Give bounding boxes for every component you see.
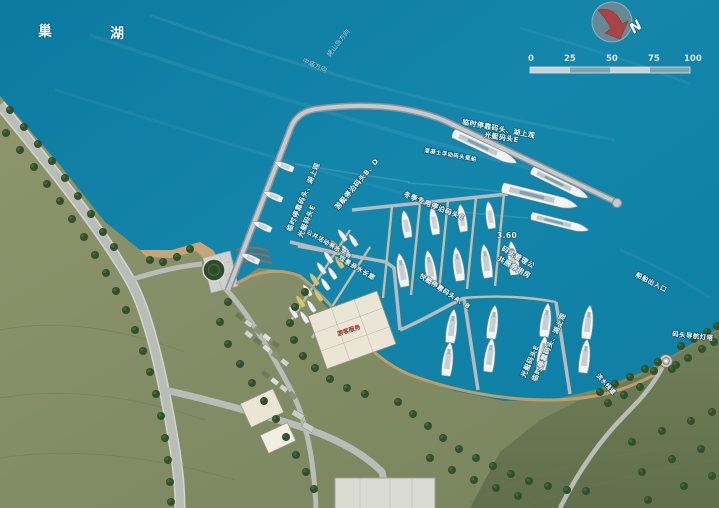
scale-tick-25: 25	[564, 54, 576, 64]
scale-tick-50: 50	[606, 54, 618, 64]
breakwater-head	[613, 199, 622, 208]
scale-tick-0: 0	[528, 54, 534, 64]
lake-name-left: 巢	[37, 23, 53, 40]
scale-tick-100: 100	[684, 54, 702, 64]
scale-tick-75: 75	[648, 54, 660, 64]
south-building	[335, 478, 435, 508]
marina-master-plan: N 0 25 50 75 100 巢 湖 姥山岛方向 中庙方向 临时停靠码头、湖…	[0, 0, 719, 508]
roundabout-green	[203, 259, 225, 281]
lake-name-right: 湖	[110, 26, 124, 42]
elevation-mark-label: 3.60	[497, 231, 517, 240]
plan-canvas: N 0 25 50 75 100 巢 湖 姥山岛方向 中庙方向 临时停靠码头、湖…	[0, 0, 719, 508]
